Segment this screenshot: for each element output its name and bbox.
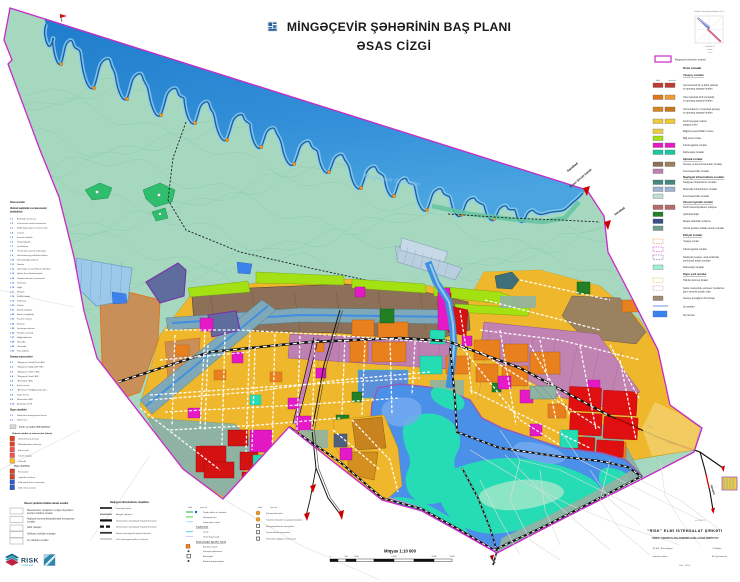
svg-text:təklif: təklif <box>188 506 193 509</box>
svg-text:İdman məşğulluğu: İdman məşğulluğu <box>17 313 35 316</box>
svg-text:Mitropolinin NEB: Mitropolinin NEB <box>17 398 33 401</box>
svg-text:Digər şərti işarələr: Digər şərti işarələr <box>683 272 707 276</box>
svg-text:Şəhfan fəaliyyəti: Şəhfan fəaliyyəti <box>17 309 33 312</box>
svg-text:Tikintisi dünmuş binalar: Tikintisi dünmuş binalar <box>683 279 708 282</box>
svg-text:Ehtiyat zonalar: Ehtiyat zonalar <box>683 233 702 237</box>
svg-text:Bağ evləri zonası: Bağ evləri zonası <box>683 137 702 140</box>
svg-text:Rekreasiya zonaları: Rekreasiya zonaları <box>683 266 704 269</box>
svg-text:MİNGƏÇEVİR ŞƏHƏRİNİN BAŞ PLANI: MİNGƏÇEVİR ŞƏHƏRİNİN BAŞ PLANI <box>287 19 511 34</box>
svg-text:— orta: — orta <box>706 51 711 54</box>
svg-text:Rekreasiya zonaları: Rekreasiya zonaları <box>683 151 704 154</box>
svg-text:Mədəniyyət-əyləncə müəssisələr: Mədəniyyət-əyləncə müəssisələri <box>17 227 48 230</box>
svg-text:Su axarları: Su axarları <box>683 306 695 309</box>
svg-text:Xidməti təşkilatlar və müəssis: Xidməti təşkilatlar və müəssisələr <box>10 207 47 210</box>
svg-text:Fürqala çəmanaq: Fürqala çəmanaq <box>17 331 34 334</box>
svg-text:Yaşayış zonası: Yaşayış zonası <box>683 240 699 243</box>
svg-text:Dəmiryol platforması: Dəmiryol platforması <box>203 550 222 553</box>
svg-text:Uşmusiyyə Tərəvəl Əyinək hidar: Uşmusiyyə Tərəvəl Əyinək hidarbası <box>17 268 51 271</box>
svg-text:Su mühafizə zonaları: Su mühafizə zonaları <box>27 539 49 542</box>
svg-text:Layihənin rəhbəri: Layihənin rəhbəri <box>652 556 668 558</box>
svg-text:Parovozlar: Parovozlar <box>18 470 29 473</box>
svg-text:Yanaltına körpələri və qəyiq s: Yanaltına körpələri və qəyiq stansiyalar… <box>266 518 303 521</box>
svg-text:Ümumşəhər əhəmiyyətli magistra: Ümumşəhər əhəmiyyətli magistral küçələr <box>116 519 157 522</box>
svg-text:Yaşayış zonaları: Yaşayış zonaları <box>683 73 704 77</box>
svg-text:Mingəçevir şəhərinin sərhədi: Mingəçevir şəhərinin sərhədi <box>675 59 706 62</box>
svg-text:Əsas zonalar: Əsas zonalar <box>683 66 702 70</box>
svg-text:Stadion: Stadion <box>17 263 25 266</box>
svg-text:Hərbi hissə/obyektlərin poliqo: Hərbi hissə/obyektlərin poliqonu <box>683 206 718 209</box>
svg-text:təklif: təklif <box>258 506 263 509</box>
svg-text:Avtobus dayanacaqları: Avtobus dayanacaqları <box>203 560 225 563</box>
svg-text:Ehtiyatlı: Ehtiyatlı <box>17 290 25 293</box>
svg-text:Kənd təsərrüfatı zonaları: Kənd təsərrüfatı zonaları <box>683 195 710 198</box>
svg-text:Hərbçilərin düşərgə tikinti ha: Hərbçilərin düşərgə tikinti hasarı <box>17 414 47 417</box>
svg-text:Füzərat mərkəzi: Füzərat mərkəzi <box>17 318 32 321</box>
svg-text:Məişət tullantıları poliqonu: Məişət tullantıları poliqonu <box>683 220 711 223</box>
svg-text:Sahilyanı mühafizə zolaqları: Sahilyanı mühafizə zolaqları <box>27 533 56 536</box>
svg-text:təklif: təklif <box>656 79 661 82</box>
svg-text:C.N.Əliyev: C.N.Əliyev <box>712 548 722 550</box>
svg-text:"Mingəçevir Tikinto" ASC: "Mingəçevir Tikinto" ASC <box>17 370 40 373</box>
svg-text:Uludərmi təravəri müəssisələri: Uludərmi təravəri müəssisələri <box>17 277 45 280</box>
svg-text:Texniki xidmət stansiyaları: Texniki xidmət stansiyaları <box>266 531 291 534</box>
svg-text:Şəhər qala: Şəhər qala <box>18 449 29 452</box>
svg-text:İctimai-işgüzar zonalar: İctimai-işgüzar zonalar <box>683 248 707 251</box>
svg-text:"Alüminium" Nəqliyyatçılıq məh: "Alüminium" Nəqliyyatçılıq məhs <box>17 389 47 392</box>
svg-text:Kitabxana: Kitabxana <box>17 300 27 303</box>
svg-text:Qəbiristanlıqlar: Qəbiristanlıqlar <box>683 213 699 216</box>
svg-text:Sənaye və kommunal-anbar zonal: Sənaye və kommunal-anbar zonaları <box>683 163 722 166</box>
svg-text:Nəqliyyat infrastrukturu obyek: Nəqliyyat infrastrukturu obyektləri <box>110 501 149 504</box>
svg-text:Liman: Liman <box>203 532 210 534</box>
svg-text:mövcud: mövcud <box>270 507 277 509</box>
svg-text:C O M P A N Y: C O M P A N Y <box>22 564 35 567</box>
svg-text:Zibil yandırılması stansiyası: Zibil yandırılması stansiyası <box>18 481 45 484</box>
svg-text:mövcud: mövcud <box>200 507 207 509</box>
svg-text:"Mingəçevir Tekstil Parkı" ASC: "Mingəçevir Tekstil Parkı" ASC <box>17 361 45 364</box>
svg-text:Xüsusi şərtlərlə istifadə olun: Xüsusi şərtlərlə istifadə olunan zonalar <box>683 227 724 230</box>
svg-text:"Mingəçevir Eqlqa LAP" ASC: "Mingəçevir Eqlqa LAP" ASC <box>17 366 44 369</box>
svg-text:Rayon əhəmiyyətli magistral kü: Rayon əhəmiyyətli magistral küçələr <box>116 532 151 535</box>
svg-text:zonaları: zonaları <box>27 521 36 524</box>
svg-text:Bağçılıq təsərrüfatları zonası: Bağçılıq təsərrüfatları zonası <box>683 130 714 133</box>
svg-text:Xüsusi şərtlərlə istifadə olun: Xüsusi şərtlərlə istifadə olunan ərazilə… <box>24 502 68 505</box>
svg-text:Parklar: Parklar <box>17 304 24 307</box>
svg-text:ƏSAS CİZGİ: ƏSAS CİZGİ <box>357 38 432 53</box>
svg-text:Nudri Ş.U.M.: Nudri Ş.U.M. <box>17 393 29 396</box>
svg-text:İstehsalat: İstehsalat <box>17 281 26 284</box>
svg-text:Şəhərçiyi limanları: Şəhərçiyi limanları <box>266 512 283 515</box>
svg-text:Əsas işarələr: Əsas işarələr <box>10 201 25 204</box>
svg-text:Kənd təsərrüfatı zonaları: Kənd təsərrüfatı zonaları <box>683 170 710 173</box>
svg-text:görə nəzərdə tutulan ərazi: görə nəzərdə tutulan ərazi <box>683 290 711 293</box>
svg-text:Sahil zolaqları: Sahil zolaqları <box>27 526 42 529</box>
svg-text:"Ş.İ.B.N." Elmi tədqiqat: "Ş.İ.B.N." Elmi tədqiqat <box>652 547 673 550</box>
svg-text:Nəqliyyat infrastrukturu zonal: Nəqliyyat infrastrukturu zonaları <box>683 181 717 184</box>
svg-text:Bakı - 2014.1: Bakı - 2014.1 <box>679 565 690 567</box>
svg-text:"Mingəçevir Santit" ASC: "Mingəçevir Santit" ASC <box>17 375 40 378</box>
svg-text:Çimərlik: Çimərlik <box>18 460 27 463</box>
svg-text:Bərlə exnimia: Bərlə exnimia <box>17 384 30 387</box>
svg-text:İqtisadi zonalar: İqtisadi zonalar <box>683 157 703 161</box>
svg-text:İnternat məktəbli: İnternat məktəbli <box>17 236 33 239</box>
svg-text:Texniki idarə qərəmi udamaqlar: Texniki idarə qərəmi udamaqları <box>17 249 47 252</box>
svg-text:Bərələrin keçidi: Bərələrin keçidi <box>203 545 218 548</box>
svg-text:Avtoyol şəbəkəsi: Avtoyol şəbəkəsi <box>116 513 133 516</box>
svg-text:İctimai-işgüzar zonalar: İctimai-işgüzar zonalar <box>683 144 707 147</box>
svg-text:Avtovağzal: Avtovağzal <box>203 555 214 558</box>
svg-text:Yerli əhəmiyyətli yollar və kü: Yerli əhəmiyyətli yollar və küçələr <box>116 538 148 541</box>
svg-text:"ENKO" ŞƏHƏR PLANLAŞDIRMA ELMİ: "ENKO" ŞƏHƏR PLANLAŞDIRMA ELMİ-LAYİHƏ İN… <box>651 537 718 540</box>
svg-text:Şəkillər fabriki: Şəkillər fabriki <box>17 295 30 298</box>
svg-text:mövcud: mövcud <box>668 80 675 82</box>
svg-text:A.T.Qəhrəmanov: A.T.Qəhrəmanov <box>712 555 727 558</box>
svg-text:Hüseyinqulithurma stansiyaları: Hüseyinqulithurma stansiyaları <box>266 525 295 528</box>
svg-text:Stomatoloqiya kabineti: Stomatoloqiya kabineti <box>17 259 38 262</box>
svg-text:Dayanacaqlar (gəmilər üçün): Dayanacaqlar (gəmilər üçün) <box>196 541 226 543</box>
svg-text:Vağal: Vağal <box>17 286 23 289</box>
svg-text:Nəqliyyat kommunikasiyalarında: Nəqliyyat kommunikasiyalarından texnogen… <box>27 518 75 521</box>
svg-text:RISK: RISK <box>21 558 39 565</box>
svg-text:Bazarlar: Bazarlar <box>17 322 25 325</box>
svg-text:Uşaq bağçaları: Uşaq bağçaları <box>17 240 31 243</box>
svg-text:Şəhfar Evun Stadmiriquladi: Şəhfar Evun Stadmiriquladi <box>17 272 43 275</box>
svg-text:Təmir və mədən tikili abidələr: Təmir və mədən tikili abidələri <box>19 426 51 429</box>
svg-text:Sənaye müəssisələri: Sənaye müəssisələri <box>10 357 33 359</box>
svg-text:Digər obyektlər: Digər obyektlər <box>10 409 27 412</box>
svg-text:Mağmittokkanla: Mağmittokkanla <box>17 336 32 339</box>
svg-text:Xidməti təşkilat və müəssisələ: Xidməti təşkilat və müəssisələr (əlavə) <box>12 432 52 435</box>
svg-text:— küləklərin %: — küləklərin % <box>703 45 715 48</box>
svg-text:Məscidlər: Məscidlər <box>17 340 26 343</box>
svg-text:Miqyas 1:10 000: Miqyas 1:10 000 <box>384 549 417 554</box>
svg-text:Hərbi hissə: Hərbi hissə <box>17 419 28 422</box>
svg-text:4 000: 4 000 <box>431 556 437 558</box>
svg-text:— təqvim: — təqvim <box>705 48 713 51</box>
svg-text:Orta ixtisaslı təhsil müəssisə: Orta ixtisaslı təhsil müəssisələri <box>17 222 47 225</box>
svg-text:Qonfaraya məkrəsi: Qonfaraya məkrəsi <box>17 327 35 330</box>
svg-text:Təqdimatlar: Təqdimatlar <box>196 526 209 529</box>
svg-text:Müəssisələrin, qurğuların və d: Müəssisələrin, qurğuların və digər obyek… <box>27 509 74 512</box>
svg-text:Turizm nöqtəsi: Turizm nöqtəsi <box>18 454 33 457</box>
svg-text:Xüsusi təyinatlı zonalar: Xüsusi təyinatlı zonalar <box>683 200 713 204</box>
svg-text:Sənaye qovşağının bir hissəsi: Sənaye qovşağının bir hissəsi <box>683 297 715 300</box>
svg-text:Gəmi qatarı xətləri: Gəmi qatarı xətləri <box>203 521 221 524</box>
svg-text:yaşayış evləri: yaşayış evləri <box>683 123 698 126</box>
svg-text:sanitar-mühafizə zonaları: sanitar-mühafizə zonaları <box>27 512 53 515</box>
svg-text:və qovuşuq yaşayış binaları: və qovuşuq yaşayış binaları <box>683 99 713 102</box>
svg-text:Dəmiryol xətləri: Dəmiryol xətləri <box>116 507 132 510</box>
svg-text:kommunal anbarı zonaları: kommunal anbarı zonaları <box>683 259 711 262</box>
svg-text:Digər obyektlər: Digər obyektlər <box>14 465 30 468</box>
svg-text:"RİSK" ELMİ İSTEHSALAT ŞİRKƏTİ: "RİSK" ELMİ İSTEHSALAT ŞİRKƏTİ <box>647 529 722 533</box>
svg-text:və qovuşuq yaşayış binaları: və qovuşuq yaşayış binaları <box>683 87 713 90</box>
svg-text:Mühəndis infrastrukturu zonala: Mühəndis infrastrukturu zonaları <box>683 188 717 191</box>
svg-text:1 000: 1 000 <box>353 556 359 558</box>
svg-text:Velosiped yolu: Velosiped yolu <box>203 517 217 519</box>
svg-text:Piyada yolları və körpülər: Piyada yolları və körpülər <box>203 511 227 514</box>
svg-text:Umumtəhsil şəhərciyi: Umumtəhsil şəhərciyi <box>18 438 39 441</box>
svg-text:Ümumşəhər əhəmiyyətli magistra: Ümumşəhər əhəmiyyətli magistral küçələr <box>116 526 157 529</box>
svg-text:Nəqliyyat infrastrukturu zonal: Nəqliyyat infrastrukturu zonaları <box>683 175 724 179</box>
svg-text:Uməreddi: Uməreddi <box>17 345 27 348</box>
svg-text:v.v. 26.07.1: v.v. 26.07.1 <box>695 520 705 522</box>
svg-text:Xəstəxt: Xəstəxt <box>17 231 24 234</box>
svg-text:və qovuşuq yaşayış binaları: və qovuşuq yaşayış binaları <box>683 111 713 114</box>
svg-text:Körfə-idarəciyə poliklinika qü: Körfə-idarəciyə poliklinika qülkəsi <box>17 254 48 257</box>
svg-text:Poçt şöbələri: Poçt şöbələri <box>17 350 30 353</box>
svg-text:Qızılbuluma: Qızılbuluma <box>17 246 29 248</box>
svg-text:(məktəblər): (məktəblər) <box>10 210 23 213</box>
svg-text:Küləklərin təkrarlanması diaqr: Küləklərin təkrarlanması diaqramı 1-ci i… <box>694 10 724 13</box>
svg-text:Məktəbəqədər şəhərciyi: Məktəbəqədər şəhərciyi <box>18 443 42 446</box>
svg-text:Su hövzəsi: Su hövzəsi <box>683 314 695 317</box>
svg-text:Alt bələd müəssisəsi: Alt bələd müəssisəsi <box>17 218 36 221</box>
svg-text:Azərbaycan İGS: Azərbaycan İGS <box>17 403 33 406</box>
svg-text:"Avtotəidart" ASC: "Avtotəidart" ASC <box>17 380 34 383</box>
svg-text:Zibil emalı zavodu: Zibil emalı zavodu <box>18 488 36 490</box>
svg-text:5 000: 5 000 <box>449 556 455 558</box>
svg-text:Logistika mərkəzi: Logistika mərkəzi <box>18 476 35 479</box>
svg-text:2 000: 2 000 <box>391 556 397 558</box>
svg-text:Gəmi dayanacağı: Gəmi dayanacağı <box>203 536 220 539</box>
svg-text:İnformlərli nəqliyyat müəssisə: İnformlərli nəqliyyat müəssisələri <box>266 538 297 541</box>
